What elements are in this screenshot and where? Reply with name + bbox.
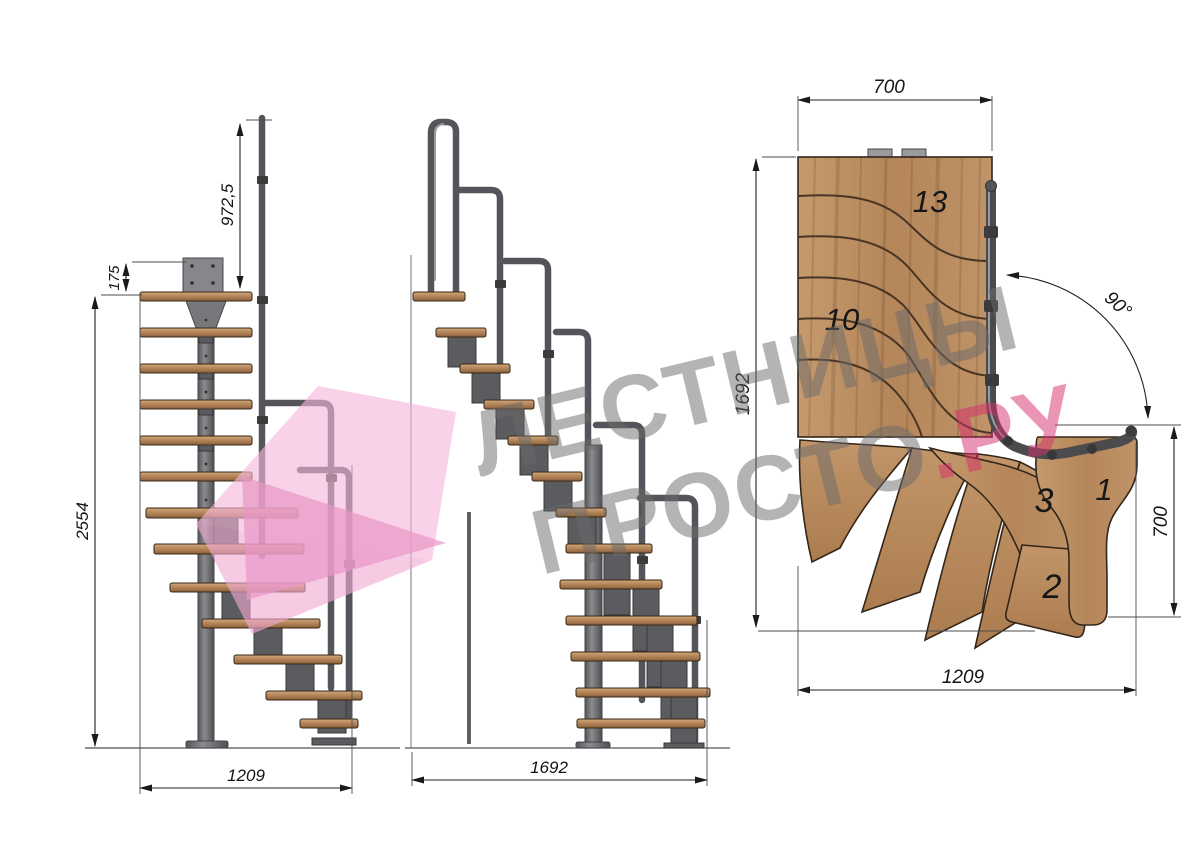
- tread-label-2: 2: [1042, 568, 1062, 606]
- dim-plan-bottom-width: 1209: [942, 667, 985, 688]
- technical-drawing-page: 972,5 175 2554 1209: [0, 0, 1200, 849]
- tread-label-13: 13: [913, 184, 947, 219]
- dim-side-flight-length: 1692: [530, 758, 568, 777]
- dim-front-total-height: 2554: [73, 502, 92, 541]
- dim-front-flight-width: 1209: [227, 766, 265, 785]
- dim-plan-right-depth: 700: [1151, 506, 1172, 538]
- staircase-drawing: 972,5 175 2554 1209: [0, 0, 1200, 849]
- watermark-logo: [196, 386, 456, 634]
- dim-plan-top-width: 700: [873, 77, 905, 98]
- dim-plan-turn-angle: 90°: [1100, 287, 1136, 322]
- top-mounting-plate: [183, 258, 223, 292]
- dim-front-rail-height: 972,5: [218, 183, 237, 226]
- tread-label-1: 1: [1095, 472, 1112, 507]
- tread-label-3: 3: [1035, 482, 1054, 520]
- dim-front-landing-plate: 175: [106, 265, 123, 291]
